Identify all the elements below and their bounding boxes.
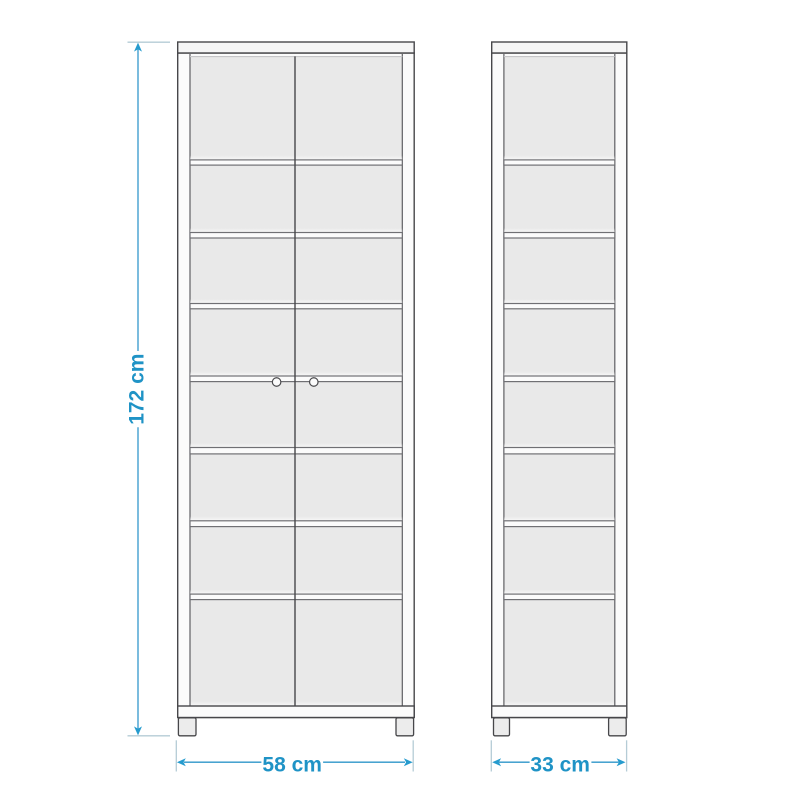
svg-text:33 cm: 33 cm xyxy=(530,753,590,776)
svg-text:58 cm: 58 cm xyxy=(262,753,322,776)
svg-text:172 cm: 172 cm xyxy=(125,354,148,425)
